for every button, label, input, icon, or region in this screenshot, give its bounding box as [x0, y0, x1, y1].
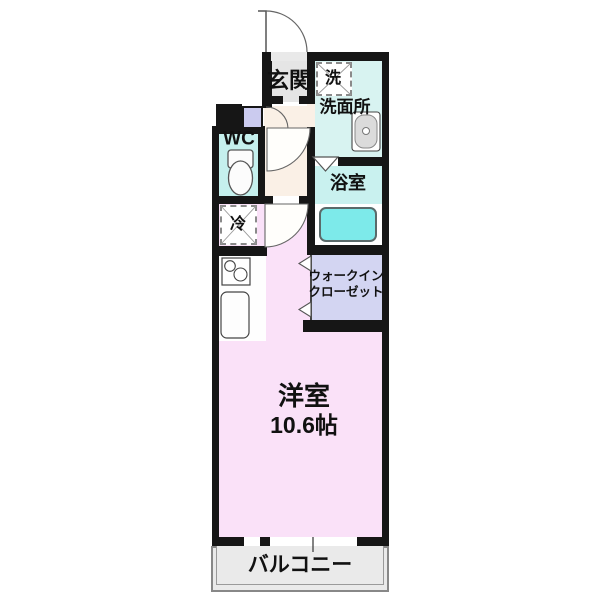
- entrance-door-arc-icon: [266, 11, 307, 52]
- entrance-door-leaf: [258, 11, 266, 52]
- entrance-door-opening: [271, 52, 307, 61]
- window-opening-main: [270, 537, 357, 546]
- shoe-box: [242, 106, 263, 129]
- wall-genkan-stub-left: [262, 96, 283, 104]
- washroom-door-opening: [307, 104, 315, 127]
- closet-label-line1: ウォークイン: [308, 268, 383, 284]
- bathtub-icon: [319, 207, 377, 242]
- closet-label: ウォークイン クローゼット: [308, 268, 383, 301]
- washer-space-label: 洗: [325, 70, 341, 88]
- hallway-floor: [264, 106, 307, 196]
- closet-label-line2: クローゼット: [308, 284, 383, 300]
- main-room-name: 洋室: [270, 382, 338, 412]
- wall-roomdoor-stub: [299, 196, 315, 204]
- window-opening-left: [244, 537, 260, 546]
- fridge-space-label: 冷: [230, 216, 246, 234]
- wall-bath-closet: [307, 245, 389, 255]
- wall-entry-step: [216, 104, 242, 126]
- main-room-label: 洋室 10.6帖: [270, 382, 338, 438]
- kitchen-floor: [219, 256, 266, 341]
- genkan-label: 玄関: [267, 69, 311, 93]
- washroom-label: 洗面所: [320, 99, 371, 118]
- floor-plan: 玄関 洗 洗面所 WC 浴室 冷 ウォークイン クローゼット 洋室 10.6帖 …: [0, 0, 600, 600]
- wall-wc-bottom: [212, 196, 273, 204]
- wc-label: WC: [223, 130, 255, 151]
- wall-genkan-stub-right: [299, 96, 307, 104]
- main-room-size: 10.6帖: [270, 412, 338, 438]
- wall-kitchen-top: [212, 246, 267, 256]
- wall-top-right: [307, 52, 389, 61]
- wall-left: [212, 126, 219, 546]
- wall-closet-bottom: [303, 320, 389, 332]
- balcony-label: バルコニー: [248, 553, 353, 576]
- bathroom-label: 浴室: [330, 174, 366, 194]
- wall-wc-right: [258, 126, 265, 204]
- wall-washroom-bath: [338, 157, 382, 166]
